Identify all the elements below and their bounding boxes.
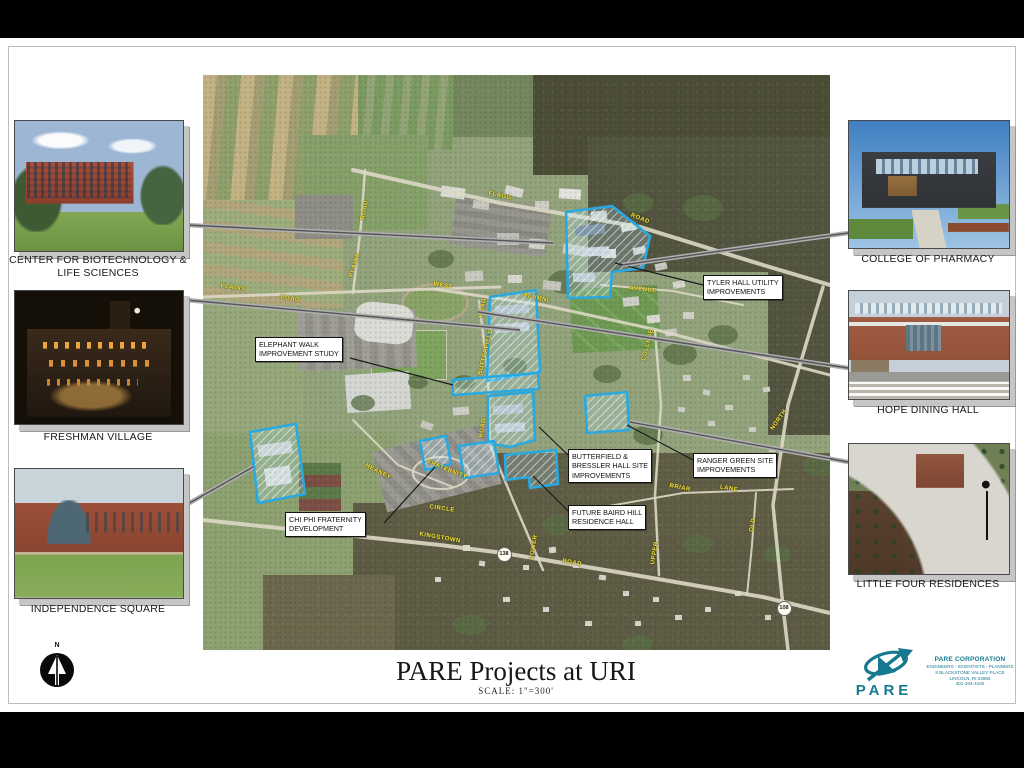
callout-line: IMPROVEMENTS bbox=[707, 287, 779, 296]
callout-ranger-green: RANGER GREEN SITEIMPROVEMENTS bbox=[693, 453, 777, 478]
pare-wordmark: PARE bbox=[846, 682, 922, 699]
company-block: PARE CORPORATION ENGINEERS - SCIENTISTS … bbox=[922, 656, 1018, 687]
poster-page: FLAGGROADROADPLAINSPLAINSROADWESTALUMNIR… bbox=[0, 0, 1024, 768]
company-address: 8 BLACKSTONE VALLEY PLACE bbox=[922, 670, 1018, 676]
callout-line: BRESSLER HALL SITE bbox=[572, 461, 648, 470]
poster-title: PARE Projects at URI bbox=[266, 656, 766, 687]
caption-independence: INDEPENDENCE SQUARE bbox=[6, 603, 190, 616]
callout-line: TYLER HALL UTILITY bbox=[707, 278, 779, 287]
photo-pharmacy bbox=[848, 120, 1010, 249]
caption-biotech: CENTER FOR BIOTECHNOLOGY & LIFE SCIENCES bbox=[6, 254, 190, 280]
photo-image-biotech bbox=[15, 121, 183, 251]
route-shield: 138 bbox=[497, 547, 512, 562]
callout-elephant-walk: ELEPHANT WALKIMPROVEMENT STUDY bbox=[255, 337, 343, 362]
callout-line: IMPROVEMENTS bbox=[697, 465, 773, 474]
photo-littlefour bbox=[848, 443, 1010, 575]
callout-line: DEVELOPMENT bbox=[289, 524, 362, 533]
photo-image-freshman bbox=[15, 291, 183, 424]
company-tagline: ENGINEERS - SCIENTISTS - PLANNERS bbox=[922, 664, 1018, 670]
caption-pharmacy: COLLEGE OF PHARMACY bbox=[836, 253, 1020, 266]
callout-line: ELEPHANT WALK bbox=[259, 340, 339, 349]
pare-logo-icon bbox=[850, 648, 920, 684]
photo-biotech bbox=[14, 120, 184, 252]
photo-image-independence bbox=[15, 469, 183, 598]
photo-image-hope bbox=[849, 291, 1009, 399]
callout-line: CHI PHI FRATERNITY bbox=[289, 515, 362, 524]
caption-littlefour: LITTLE FOUR RESIDENCES bbox=[836, 578, 1020, 591]
north-label: N bbox=[45, 642, 69, 649]
company-name: PARE CORPORATION bbox=[922, 656, 1018, 664]
scale-note: SCALE: 1"=300' bbox=[266, 686, 766, 696]
callout-line: FUTURE BAIRD HILL bbox=[572, 508, 642, 517]
callout-line: RESIDENCE HALL bbox=[572, 517, 642, 526]
route-shield: 108 bbox=[777, 601, 792, 616]
photo-image-littlefour bbox=[849, 444, 1009, 574]
callout-chi-phi: CHI PHI FRATERNITYDEVELOPMENT bbox=[285, 512, 366, 537]
caption-freshman: FRESHMAN VILLAGE bbox=[6, 431, 190, 444]
callout-line: IMPROVEMENTS bbox=[572, 471, 648, 480]
callout-line: IMPROVEMENT STUDY bbox=[259, 349, 339, 358]
callout-future-baird-hill: FUTURE BAIRD HILLRESIDENCE HALL bbox=[568, 505, 646, 530]
callout-line: RANGER GREEN SITE bbox=[697, 456, 773, 465]
caption-hope: HOPE DINING HALL bbox=[836, 404, 1020, 417]
photo-hope bbox=[848, 290, 1010, 400]
north-arrow-icon bbox=[37, 650, 77, 690]
photo-image-pharmacy bbox=[849, 121, 1009, 248]
company-phone: 401-334-4100 bbox=[922, 681, 1018, 687]
callout-butterfield-bressler: BUTTERFIELD &BRESSLER HALL SITEIMPROVEME… bbox=[568, 449, 652, 483]
photo-independence bbox=[14, 468, 184, 599]
campus-aerial-map: FLAGGROADROADPLAINSPLAINSROADWESTALUMNIR… bbox=[203, 75, 830, 650]
photo-freshman bbox=[14, 290, 184, 425]
callout-line: BUTTERFIELD & bbox=[572, 452, 648, 461]
callout-tyler-hall: TYLER HALL UTILITYIMPROVEMENTS bbox=[703, 275, 783, 300]
map-texture bbox=[203, 75, 830, 650]
